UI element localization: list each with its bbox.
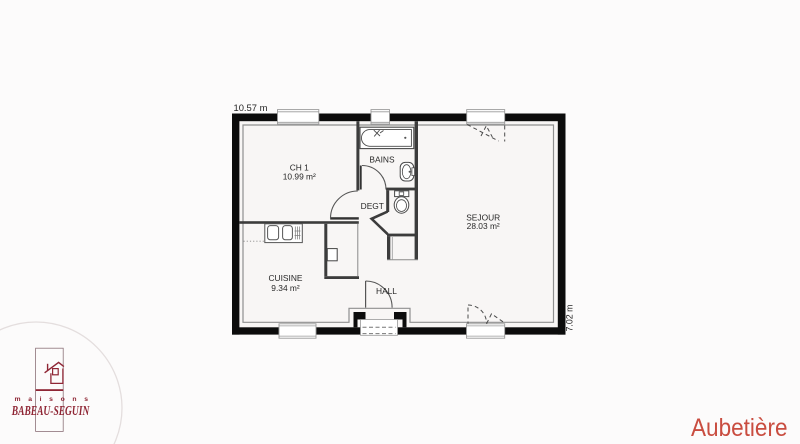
svg-text:BAINS: BAINS <box>369 154 395 164</box>
svg-text:CUISINE: CUISINE <box>269 273 303 283</box>
svg-text:7.02 m: 7.02 m <box>565 305 575 332</box>
svg-text:10.99 m²: 10.99 m² <box>283 171 316 181</box>
svg-text:BABEAU-SEGUIN: BABEAU-SEGUIN <box>11 403 90 418</box>
svg-text:9.34 m²: 9.34 m² <box>271 283 300 293</box>
svg-text:HALL: HALL <box>376 286 397 296</box>
svg-text:28.03 m²: 28.03 m² <box>467 221 500 231</box>
svg-text:DEGT: DEGT <box>361 201 384 211</box>
svg-text:Aubetière: Aubetière <box>691 414 788 442</box>
svg-text:10.57 m: 10.57 m <box>234 102 268 113</box>
